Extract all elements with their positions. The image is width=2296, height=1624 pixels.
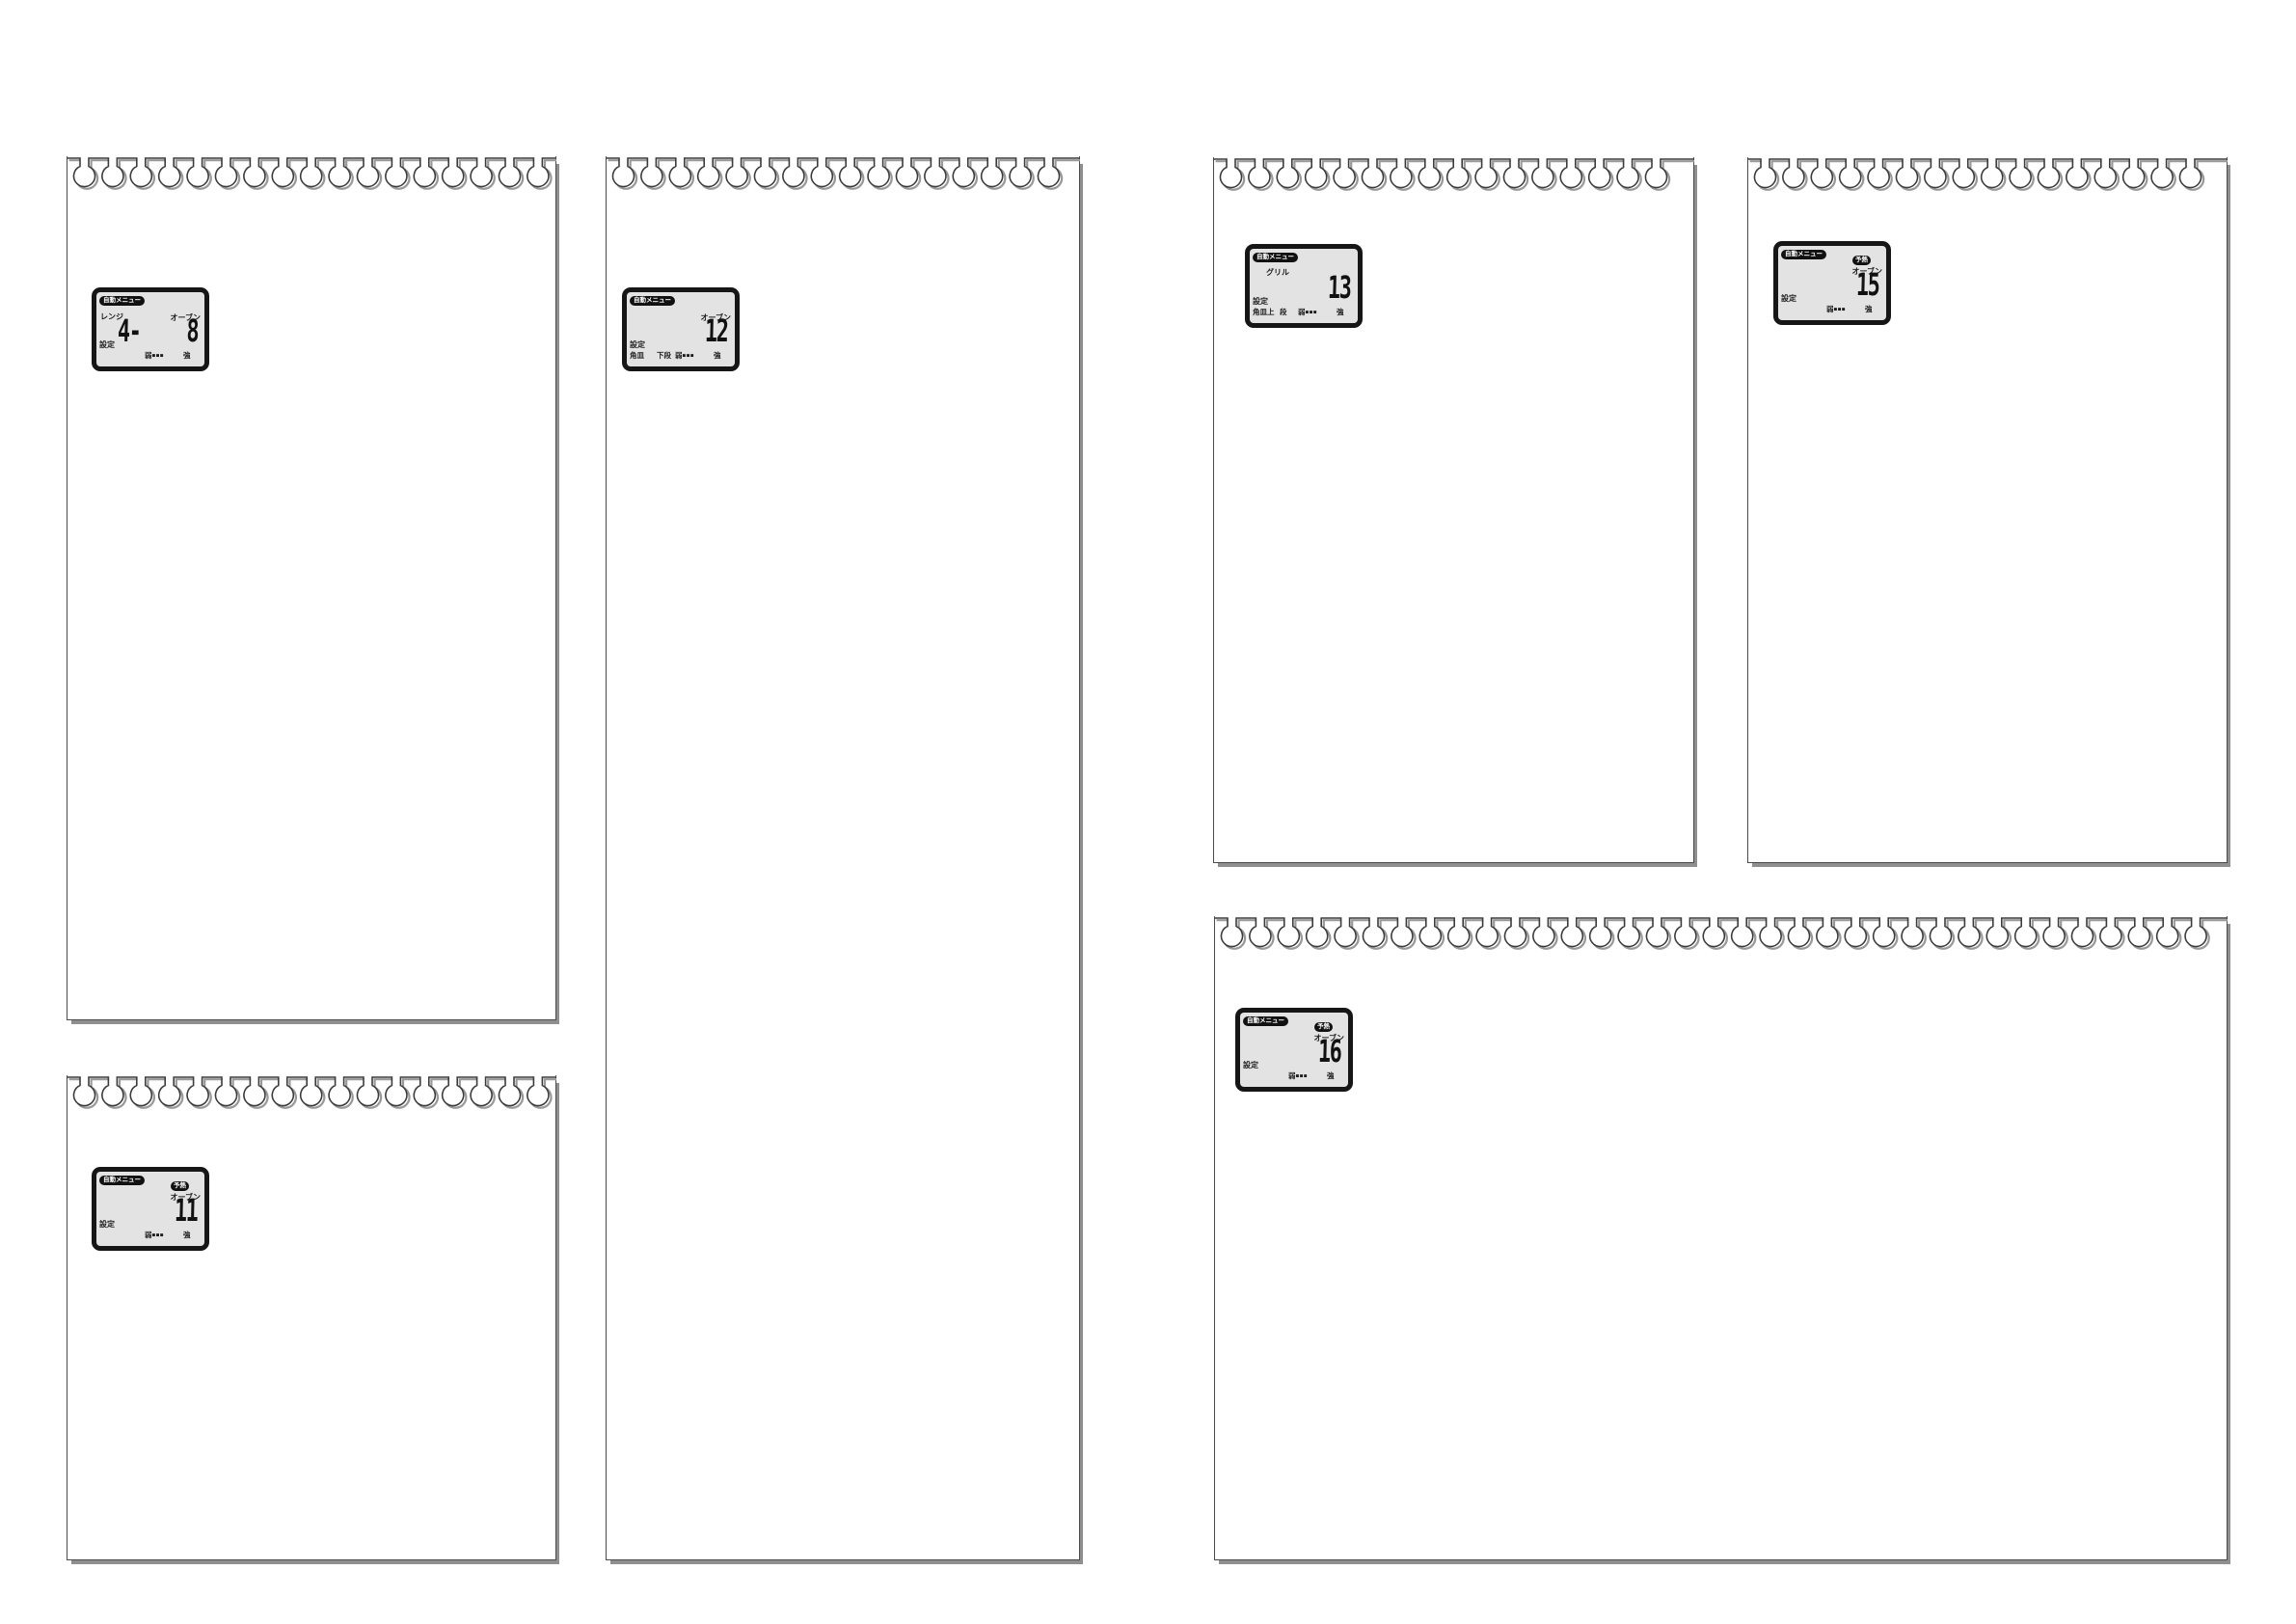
weak-text: 弱 [145, 351, 152, 360]
weak-text: 弱 [675, 351, 683, 360]
lcd-display: 自動メニュー 予熱 オーブン 15 設定 弱■■■ 強 [1773, 241, 1891, 325]
lcd-display: 自動メニュー 予熱 オーブン 11 設定 弱■■■ 強 [92, 1167, 209, 1251]
setting-label: 設定 [99, 339, 115, 350]
auto-menu-badge: 自動メニュー [99, 1176, 145, 1185]
menu-number-display: 13 [1271, 274, 1351, 301]
setting-label: 設定 [99, 1219, 115, 1230]
setting-label: 設定 [1253, 296, 1268, 307]
tray-label: 角皿 [630, 350, 644, 361]
digit-group: 8 [186, 317, 198, 344]
notepad-sheet [1214, 918, 2228, 1560]
preheat-badge: 予熱 [1314, 1022, 1333, 1032]
menu-number-display: 15 [1799, 271, 1879, 298]
tray-label: 角皿上 [1253, 307, 1275, 317]
weak-text: 弱 [145, 1231, 152, 1239]
weak-text: 弱 [1288, 1071, 1296, 1080]
auto-menu-badge: 自動メニュー [1781, 250, 1826, 259]
manual-page: 自動メニュー レンジ オーブン 4- 8 設定 弱■■■ 強 自動メニュー オー [0, 0, 2296, 1624]
menu-number-display: 4- 8 [118, 317, 198, 344]
power-strong-label: 強 [1327, 1070, 1335, 1081]
spiral-binding-icon [1213, 157, 1694, 192]
spiral-binding-icon [1747, 157, 2228, 192]
spiral-binding-icon [606, 156, 1080, 191]
spiral-binding-icon [67, 156, 556, 191]
weak-text: 弱 [1826, 305, 1834, 313]
preheat-badge: 予熱 [1852, 256, 1871, 265]
power-row: 角皿 下段 弱■■■ 強 [627, 350, 735, 364]
power-weak-label: 弱■■■ [145, 350, 164, 361]
power-weak-label: 弱■■■ [675, 350, 694, 361]
notepad-panel-oven-preheat-16: 自動メニュー 予熱 オーブン 16 設定 弱■■■ 強 [1214, 916, 2228, 1560]
power-level-icon: ■■■ [152, 354, 164, 360]
power-level-icon: ■■■ [1306, 311, 1317, 316]
menu-number-display: 16 [1261, 1038, 1341, 1065]
notepad-sheet [67, 1077, 556, 1560]
power-row: 角皿上 段 弱■■■ 強 [1250, 307, 1358, 320]
power-level-icon: ■■■ [1834, 308, 1846, 313]
power-strong-label: 強 [183, 350, 191, 361]
shelf-label: 下段 [657, 350, 671, 361]
setting-label: 設定 [1243, 1060, 1258, 1070]
digit-group: 12 [705, 317, 728, 344]
power-weak-label: 弱■■■ [145, 1230, 164, 1240]
menu-number-display: 11 [118, 1197, 198, 1224]
lcd-screen: 自動メニュー レンジ オーブン 4- 8 設定 弱■■■ 強 [96, 292, 204, 366]
power-row: 弱■■■ 強 [1240, 1070, 1348, 1084]
menu-number-display: 12 [648, 317, 728, 344]
setting-label: 設定 [1781, 293, 1796, 304]
power-level-icon: ■■■ [1296, 1074, 1308, 1080]
weak-text: 弱 [1298, 308, 1306, 316]
lcd-screen: 自動メニュー 予熱 オーブン 15 設定 弱■■■ 強 [1778, 246, 1886, 320]
lcd-display: 自動メニュー レンジ オーブン 4- 8 設定 弱■■■ 強 [92, 287, 209, 371]
power-level-icon: ■■■ [152, 1233, 164, 1239]
shelf-label: 段 [1280, 307, 1287, 317]
notepad-panel-grill-13: 自動メニュー グリル 13 設定 角皿上 段 弱■■■ 強 [1213, 157, 1694, 863]
digit-group: 4- [118, 317, 141, 344]
spiral-binding-icon [1214, 916, 2228, 951]
lcd-display: 自動メニュー オーブン 12 設定 角皿 下段 弱■■■ 強 [622, 287, 740, 371]
notepad-panel-oven-preheat-11: 自動メニュー 予熱 オーブン 11 設定 弱■■■ 強 [67, 1075, 556, 1560]
power-weak-label: 弱■■■ [1288, 1070, 1308, 1081]
notepad-panel-oven-preheat-15: 自動メニュー 予熱 オーブン 15 設定 弱■■■ 強 [1747, 157, 2228, 863]
power-strong-label: 強 [1865, 304, 1873, 314]
lcd-screen: 自動メニュー グリル 13 設定 角皿上 段 弱■■■ 強 [1250, 249, 1358, 323]
preheat-badge: 予熱 [171, 1181, 189, 1191]
notepad-panel-oven-12: 自動メニュー オーブン 12 設定 角皿 下段 弱■■■ 強 [606, 156, 1080, 1560]
auto-menu-badge: 自動メニュー [1243, 1016, 1288, 1026]
notepad-panel-range-oven: 自動メニュー レンジ オーブン 4- 8 設定 弱■■■ 強 [67, 156, 556, 1020]
power-strong-label: 強 [183, 1230, 191, 1240]
power-row: 弱■■■ 強 [96, 1230, 204, 1243]
power-row: 弱■■■ 強 [96, 350, 204, 364]
setting-label: 設定 [630, 339, 645, 350]
digit-group: 15 [1856, 271, 1879, 298]
power-row: 弱■■■ 強 [1778, 304, 1886, 317]
lcd-screen: 自動メニュー 予熱 オーブン 16 設定 弱■■■ 強 [1240, 1013, 1348, 1087]
auto-menu-badge: 自動メニュー [630, 296, 675, 306]
digit-group: 11 [175, 1197, 198, 1224]
power-weak-label: 弱■■■ [1826, 304, 1846, 314]
digit-group: 16 [1318, 1038, 1341, 1065]
power-level-icon: ■■■ [683, 354, 694, 360]
digit-group: 13 [1328, 274, 1351, 301]
power-weak-label: 弱■■■ [1298, 307, 1317, 317]
auto-menu-badge: 自動メニュー [99, 296, 145, 306]
spiral-binding-icon [67, 1075, 556, 1110]
auto-menu-badge: 自動メニュー [1253, 253, 1298, 262]
lcd-screen: 自動メニュー オーブン 12 設定 角皿 下段 弱■■■ 強 [627, 292, 735, 366]
lcd-display: 自動メニュー グリル 13 設定 角皿上 段 弱■■■ 強 [1245, 244, 1363, 328]
power-strong-label: 強 [714, 350, 721, 361]
lcd-display: 自動メニュー 予熱 オーブン 16 設定 弱■■■ 強 [1235, 1008, 1353, 1092]
lcd-screen: 自動メニュー 予熱 オーブン 11 設定 弱■■■ 強 [96, 1172, 204, 1246]
power-strong-label: 強 [1337, 307, 1344, 317]
